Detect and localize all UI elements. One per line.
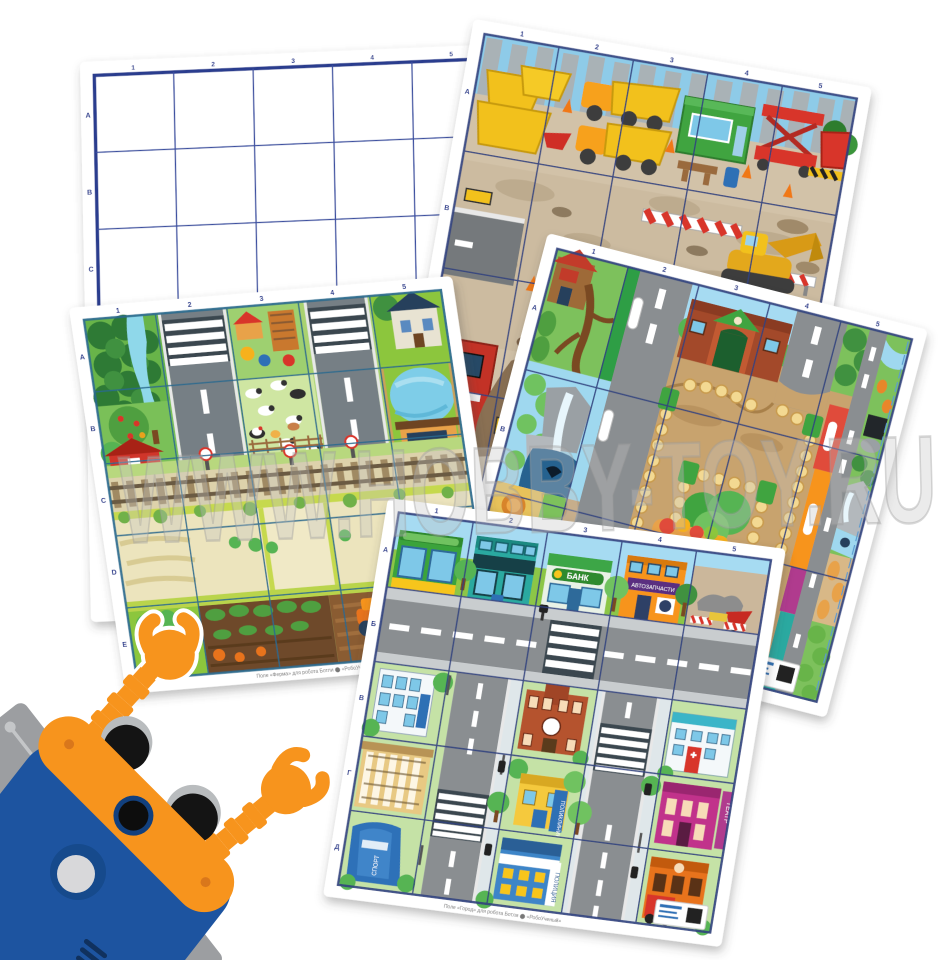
- svg-text:4: 4: [370, 55, 374, 62]
- svg-text:2: 2: [211, 61, 215, 68]
- svg-text:C: C: [101, 498, 107, 505]
- svg-text:A: A: [85, 113, 90, 120]
- svg-text:5: 5: [449, 51, 453, 58]
- svg-text:C: C: [88, 267, 93, 274]
- svg-text:1: 1: [131, 65, 135, 72]
- svg-text:D: D: [111, 570, 117, 577]
- svg-text:B: B: [90, 426, 96, 433]
- svg-text:B: B: [87, 190, 92, 197]
- svg-text:3: 3: [291, 58, 295, 65]
- svg-text:A: A: [79, 354, 85, 361]
- svg-text:WWW.HOBBY-TOY.RU: WWW.HOBBY-TOY.RU: [117, 411, 938, 570]
